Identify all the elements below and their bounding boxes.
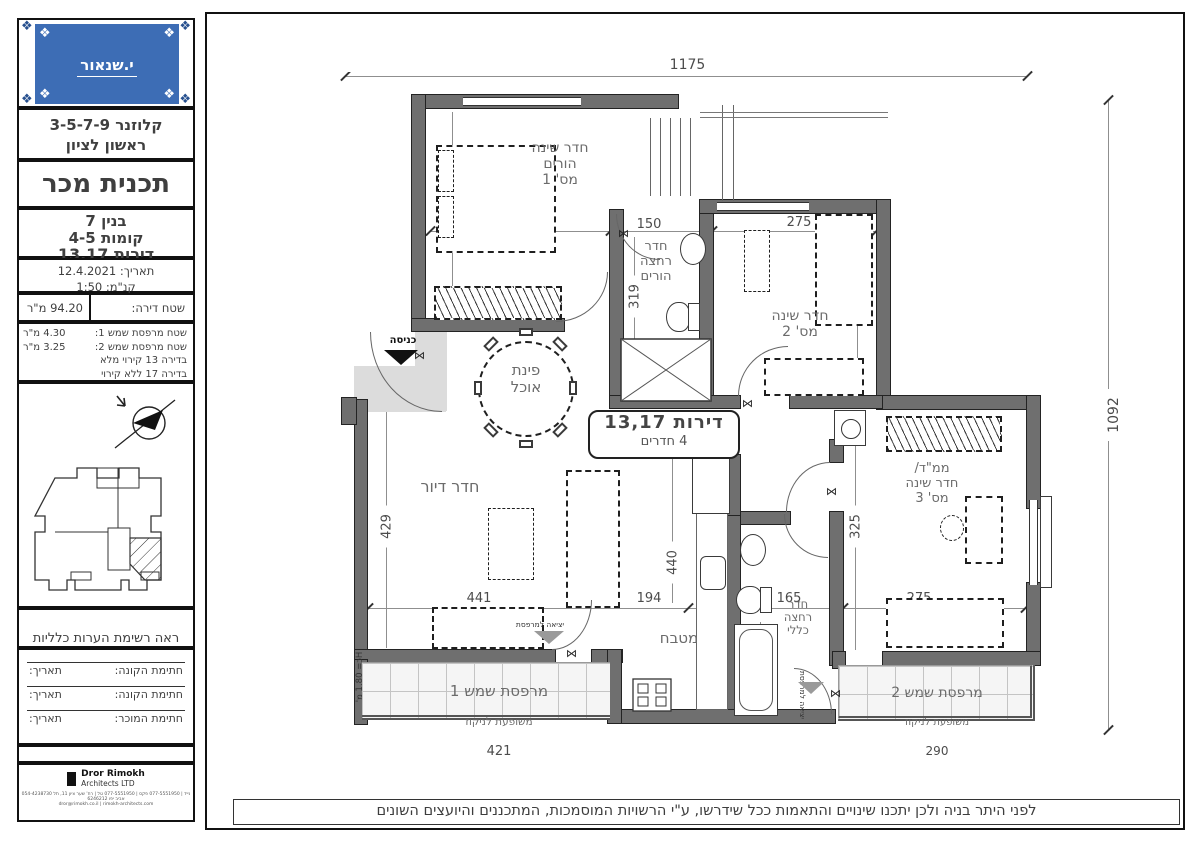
balcony2-name: מרפסת שמש 2: [844, 685, 1030, 701]
dimension-line: [345, 76, 1028, 77]
overall-width-dim: 1175: [345, 58, 1030, 72]
wall: [830, 512, 843, 665]
railing-height-note: Hכ= 1.80 מ': [356, 642, 366, 712]
shower: [620, 338, 712, 402]
bed2-width-dim: 275: [778, 216, 820, 229]
window-sill: [1040, 496, 1052, 588]
ornament-icon: ❖: [179, 93, 191, 106]
balcony2-area-value: 3.25 מ"ר: [23, 341, 65, 355]
wall: [883, 652, 1040, 665]
building-line2: קומות 4-5: [19, 230, 193, 247]
architect-contact: 054-4238730 נייד | 077-5551950 פקס | 077…: [19, 792, 193, 802]
ornament-icon: ❖: [21, 20, 33, 33]
stove: [632, 678, 672, 712]
ornament-icon: ❖: [179, 20, 191, 33]
balcony1-area-value: 4.30 מ"ר: [23, 327, 65, 341]
balcony1-area-label: שטח מרפסת שמש 1:: [95, 327, 187, 341]
apartment-area-box: שטח דירה: 94.20 מ"ר: [17, 293, 195, 322]
balcony-areas-box: שטח מרפסת שמש 1: 4.30 מ"ר שטח מרפסת שמש …: [17, 322, 195, 382]
bedroom1-label: חדר שינה הורים מס' 1: [505, 140, 615, 188]
building-line1: בנין 7: [19, 213, 193, 230]
balcony2-area-label: שטח מרפסת שמש 2:: [95, 341, 187, 355]
keyplan-box: [17, 382, 195, 608]
wall: [355, 400, 367, 660]
architect-website: dror@rimokh.co.il | rimokh-architects.co…: [19, 802, 193, 807]
project-line2: ראשון לציון: [19, 136, 193, 156]
signature-row: חתימת המוכר: תאריך:: [19, 710, 193, 725]
living-room-label: חדר דיור: [405, 478, 495, 496]
date-label: תאריך:: [29, 712, 62, 725]
mamad-label: ממ"ד/ חדר שינה מס' 3: [882, 462, 982, 507]
balcony2-sub: משופעת לניקוז: [844, 717, 1030, 729]
washing-machine-drum: [841, 419, 861, 439]
wall: [412, 95, 425, 331]
closet: [886, 416, 1002, 452]
kitchen-width-dim: 194: [628, 592, 670, 605]
window: [717, 202, 809, 211]
ornament-icon: ❖: [163, 27, 175, 40]
chair: [474, 381, 482, 395]
toilet: [736, 586, 762, 614]
wall: [1027, 396, 1040, 508]
window: [463, 97, 581, 106]
balcony1-label: מרפסת שמש 1 משופעת לניקוז 421: [390, 667, 608, 776]
company-logo: ❖ ❖ ❖ ❖ י.שנאור: [35, 24, 179, 104]
date-scale-box: תאריך: 12.4.2021 קנ"מ: 1:50: [17, 258, 195, 293]
chair: [940, 515, 964, 541]
unit-tag: דירות 13,17 4 חדרים: [588, 410, 740, 459]
door-hinge-icon: ⋈: [414, 350, 425, 361]
wall: [877, 200, 890, 409]
signature-row: חתימת הקונה: תאריך:: [19, 662, 193, 677]
overall-height-dim: 1092: [1107, 389, 1121, 441]
spacer-box: [17, 745, 195, 763]
general-notes-box: ראה רשימת הערות כלליות ומקרא בתחילת חובר…: [17, 608, 195, 648]
mamad-height-dim: 325: [850, 506, 863, 548]
brand-name: י.שנאור: [35, 56, 179, 74]
wall: [355, 650, 555, 662]
building-info-box: בנין 7 קומות 4-5 דירות 13,17: [17, 208, 195, 258]
door-hinge-icon: ⋈: [826, 486, 837, 497]
wall: [790, 396, 883, 408]
crib: [744, 230, 770, 292]
project-line1: קלוזנר 3-5-7-9: [19, 116, 193, 136]
seller-signature-label: חתימת המוכר:: [115, 712, 183, 725]
sink: [740, 534, 766, 566]
door-hinge-icon: ⋈: [742, 398, 753, 409]
sale-plan-sheet: ❖ ❖ ❖ ❖ י.שנאור ❖ ❖ ❖ ❖ קלוזנר 3-5-7-9 ר…: [0, 0, 1197, 842]
shaft-lines: [650, 118, 696, 196]
balcony1-sub: משופעת לניקוז: [390, 716, 608, 728]
chair: [519, 440, 533, 448]
sofa: [566, 470, 620, 608]
bathtub: [734, 624, 778, 716]
logo-box: ❖ ❖ ❖ ❖ י.שנאור ❖ ❖ ❖ ❖: [17, 18, 195, 108]
wall: [412, 319, 564, 331]
date-label: תאריך:: [29, 688, 62, 701]
bathtub-inner: [739, 629, 773, 711]
architect-box: Dror Rimokh Architects LTD 054-4238730 נ…: [17, 763, 195, 822]
date-line: תאריך: 12.4.2021: [19, 263, 193, 279]
refrigerator: [692, 458, 730, 514]
coffee-table: [488, 508, 534, 580]
ornament-icon: ❖: [39, 27, 51, 40]
buyer-signature-label: חתימת הקונה:: [115, 664, 183, 677]
toilet: [666, 302, 690, 332]
buyer-signature-label: חתימת הקונה:: [115, 688, 183, 701]
window: [1029, 500, 1038, 585]
living-width-dim: 441: [458, 592, 500, 605]
balcony-note2: בדירה 17 ללא קירוי: [23, 368, 187, 382]
north-arrow-icon: [109, 390, 179, 456]
living-height-dim: 429: [381, 506, 394, 548]
architect-subtitle: Architects LTD: [81, 780, 145, 788]
unit-number: דירות 13,17: [590, 412, 738, 434]
wall: [342, 398, 356, 424]
kitchen-sink: [700, 556, 726, 590]
door-hinge-icon: ⋈: [566, 648, 577, 659]
pergola-lines: [700, 112, 888, 118]
shaft-lines: [722, 105, 734, 201]
kitchen-label: מטבח: [650, 630, 708, 647]
area-label: שטח דירה:: [89, 295, 193, 320]
ornament-icon: ❖: [21, 93, 33, 106]
balcony-note1: בדירה 13 קירוי מלא: [23, 354, 187, 368]
bathroom1-label: חדר רחצה הורים: [618, 240, 694, 285]
bed: [886, 598, 1004, 648]
brand-underline: [77, 76, 137, 77]
exit-arrow-icon: [534, 631, 564, 644]
closet: [434, 286, 562, 320]
balcony2-width-dim: 290: [844, 745, 1030, 759]
chair: [519, 328, 533, 336]
ornament-icon: ❖: [39, 88, 51, 101]
plan-title-box: תכנית מכר: [17, 160, 195, 208]
ornament-icon: ❖: [163, 88, 175, 101]
bedroom2-label: חדר שינה מס' 2: [745, 308, 855, 340]
pillow: [438, 196, 454, 238]
balcony2-label: מרפסת שמש 2 משופעת לניקוז 290: [844, 669, 1030, 775]
exit-arrow-icon: [798, 682, 824, 694]
kitchen-height-dim: 440: [667, 542, 680, 584]
chair: [569, 381, 577, 395]
door-hinge-icon: ⋈: [830, 688, 841, 699]
signatures-box: חתימת הקונה: תאריך: חתימת הקונה: תאריך: …: [17, 648, 195, 745]
signature-row: חתימת הקונה: תאריך:: [19, 686, 193, 701]
project-title-box: קלוזנר 3-5-7-9 ראשון לציון: [17, 108, 195, 160]
key-plan: [33, 450, 183, 602]
area-value: 94.20 מ"ר: [19, 295, 89, 320]
balcony1-exit-label: יציאה למרפסת: [508, 621, 572, 630]
door-hinge-icon: ⋈: [618, 228, 629, 239]
toilet-tank: [688, 303, 700, 331]
washing-machine: [834, 410, 866, 446]
balcony1-name: מרפסת שמש 1: [390, 683, 608, 700]
pillow: [438, 150, 454, 192]
disclaimer-note: לפני היתר בניה ולכן יתכנו שינויים והתאמו…: [233, 799, 1180, 825]
wall: [883, 396, 1040, 409]
balcony2-exit-label: יציאה למרפסת: [797, 666, 806, 724]
date-label: תאריך:: [29, 664, 62, 677]
architect-logo-icon: [67, 772, 76, 786]
bathroom2-label: חדר רחצה כללי: [770, 598, 826, 638]
dining-label: פינת אוכל: [495, 362, 557, 397]
plan-title: תכנית מכר: [19, 162, 193, 206]
balcony1-width-dim: 421: [390, 745, 608, 760]
unit-rooms: 4 חדרים: [590, 434, 738, 449]
